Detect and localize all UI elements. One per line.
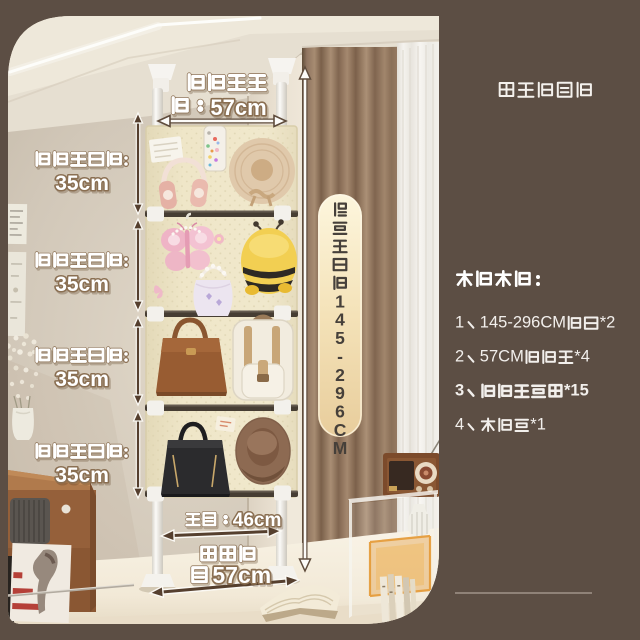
- svg-text:1: 1: [335, 291, 345, 311]
- svg-text:*2: *2: [600, 314, 616, 332]
- svg-text:*4: *4: [574, 348, 590, 366]
- svg-text:*1: *1: [530, 416, 546, 434]
- svg-text:57CM: 57CM: [480, 348, 524, 366]
- svg-text:2: 2: [455, 348, 464, 366]
- svg-text:M: M: [333, 438, 348, 458]
- svg-text:6: 6: [335, 402, 345, 422]
- svg-text:35cm: 35cm: [55, 273, 109, 296]
- svg-text:35cm: 35cm: [55, 368, 109, 391]
- svg-text:35cm: 35cm: [55, 464, 109, 487]
- svg-text:35cm: 35cm: [55, 172, 109, 195]
- svg-text:57cm: 57cm: [212, 562, 271, 588]
- svg-text:4: 4: [335, 310, 345, 330]
- svg-text:5: 5: [335, 328, 345, 348]
- svg-text:1: 1: [455, 314, 464, 332]
- svg-text:4: 4: [455, 416, 464, 434]
- svg-text:2: 2: [335, 365, 345, 385]
- svg-text:46cm: 46cm: [233, 510, 282, 531]
- svg-text:*15: *15: [564, 382, 589, 400]
- svg-text:3: 3: [455, 382, 464, 400]
- svg-text:C: C: [334, 420, 347, 440]
- svg-text:57cm: 57cm: [210, 95, 266, 120]
- svg-text:145-296CM: 145-296CM: [480, 314, 566, 332]
- svg-text:-: -: [337, 346, 343, 366]
- svg-text:9: 9: [335, 383, 345, 403]
